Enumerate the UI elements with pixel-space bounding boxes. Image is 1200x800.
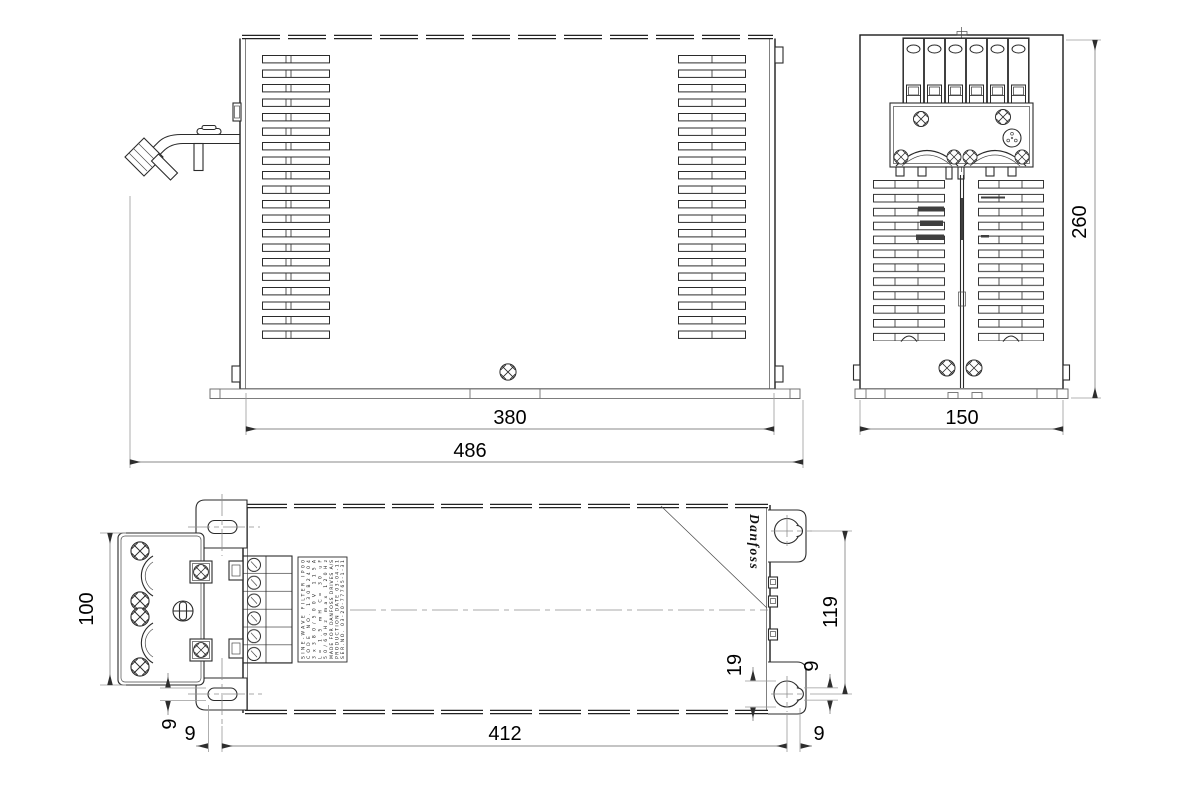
dim-9-text: 9 (184, 723, 195, 745)
dim-side-height: 260 (1066, 40, 1101, 398)
dim-19-text: 19 (724, 654, 746, 676)
dim-380-text: 380 (493, 407, 526, 429)
connector-block (118, 533, 243, 685)
dim-150-text: 150 (945, 407, 978, 429)
screw-icon (131, 542, 149, 560)
screw-icon (894, 150, 908, 164)
screw-icon (194, 565, 209, 580)
dim-9-text: 9 (159, 718, 181, 729)
dim-flange-width: 380 (246, 393, 774, 435)
danfoss-logo: Danfoss (747, 513, 762, 570)
slat-label (918, 207, 944, 212)
connector-plate (890, 103, 1033, 167)
nameplate-line: CODE NO. 130B2404 (306, 560, 312, 659)
dim-412-text: 412 (488, 723, 521, 745)
top-view: SINE-WAVE FILTER IP00 CODE NO. 130B2404 … (76, 494, 852, 752)
side-view: 150 260 (854, 27, 1102, 435)
screw-icon (966, 360, 982, 376)
nameplate: SINE-WAVE FILTER IP00 CODE NO. 130B2404 … (298, 557, 347, 662)
nameplate-line: MADE FOR DANFOSS DRIVES A/S (329, 560, 335, 659)
ventilation-slots-left (262, 55, 330, 339)
nameplate-line: SER.NO. 03-20-77765-1-31 (340, 560, 346, 659)
cable-clamp (202, 126, 216, 130)
screw-icon (131, 608, 149, 626)
screw-icon (131, 592, 149, 610)
technical-drawing-canvas: 380 486 (0, 0, 1200, 800)
keyhole-bracket-top (768, 510, 812, 562)
screw-icon (913, 111, 928, 126)
dim-slot-offset-right: 9 (787, 708, 825, 752)
side-slots-left (873, 180, 945, 341)
side-base-plate (855, 389, 1068, 399)
bracket-pin (194, 144, 203, 171)
drawing-svg: 380 486 (0, 0, 1200, 800)
base-plate (210, 389, 800, 399)
screw-icon (939, 360, 955, 376)
dim-119-text: 119 (820, 596, 842, 628)
dim-9-text: 9 (813, 723, 824, 745)
terminal-block (903, 38, 1029, 112)
screw-icon (194, 643, 209, 658)
dim-260-text: 260 (1069, 205, 1091, 238)
dim-slot-span: 412 (222, 723, 787, 746)
dim-side-width: 150 (860, 400, 1063, 435)
terminal-strip (243, 556, 292, 663)
slat-label (920, 221, 943, 227)
screw-icon (995, 109, 1010, 124)
screw-icon (131, 658, 149, 676)
side-slots-right (978, 180, 1045, 341)
screw-icon (963, 150, 977, 164)
dim-486-text: 486 (453, 440, 486, 462)
round-connector-icon (1003, 129, 1021, 147)
ventilation-slots-right (678, 55, 746, 339)
dim-9-text: 9 (801, 660, 823, 671)
front-view: 380 486 (125, 37, 803, 468)
slat-label (916, 235, 944, 241)
screw-icon (947, 150, 961, 164)
screw-icon (1015, 150, 1029, 164)
nameplate-line: PRODUCTION DATE 03-04-11 (335, 560, 341, 659)
dim-100-text: 100 (76, 592, 98, 625)
bolt-shaft (152, 154, 178, 180)
dim-slot-offset-left: 9 (184, 705, 222, 752)
screw-icon (500, 364, 516, 380)
mounting-bracket (125, 103, 241, 180)
